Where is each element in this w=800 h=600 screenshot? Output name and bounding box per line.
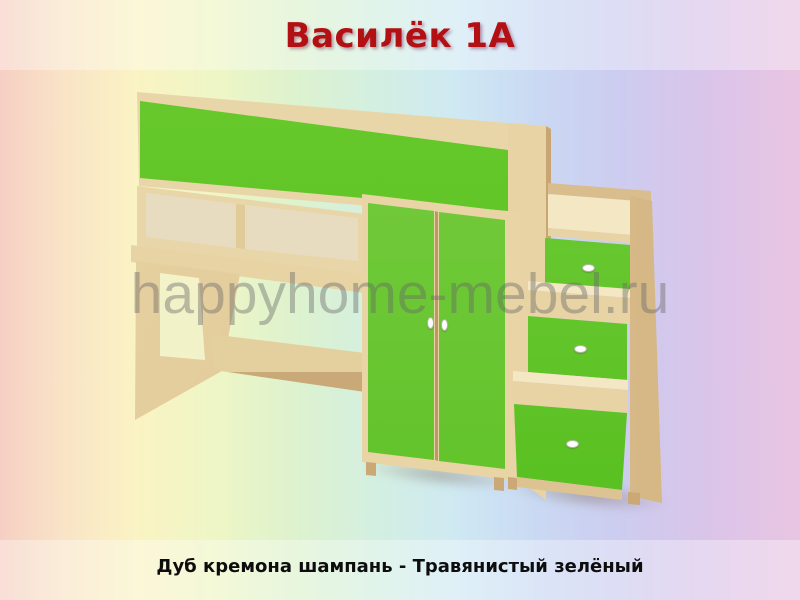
product-title: Василёк 1А — [0, 16, 800, 56]
color-caption: Дуб кремона шампань - Травянистый зелёны… — [0, 556, 800, 577]
drawer-handle-icon — [574, 345, 587, 353]
drawer-handle-icon — [566, 440, 579, 448]
product-image: happyhome-mebel.ru Василёк 1А Дуб кремон… — [0, 0, 800, 600]
site-watermark: happyhome-mebel.ru — [0, 261, 800, 327]
